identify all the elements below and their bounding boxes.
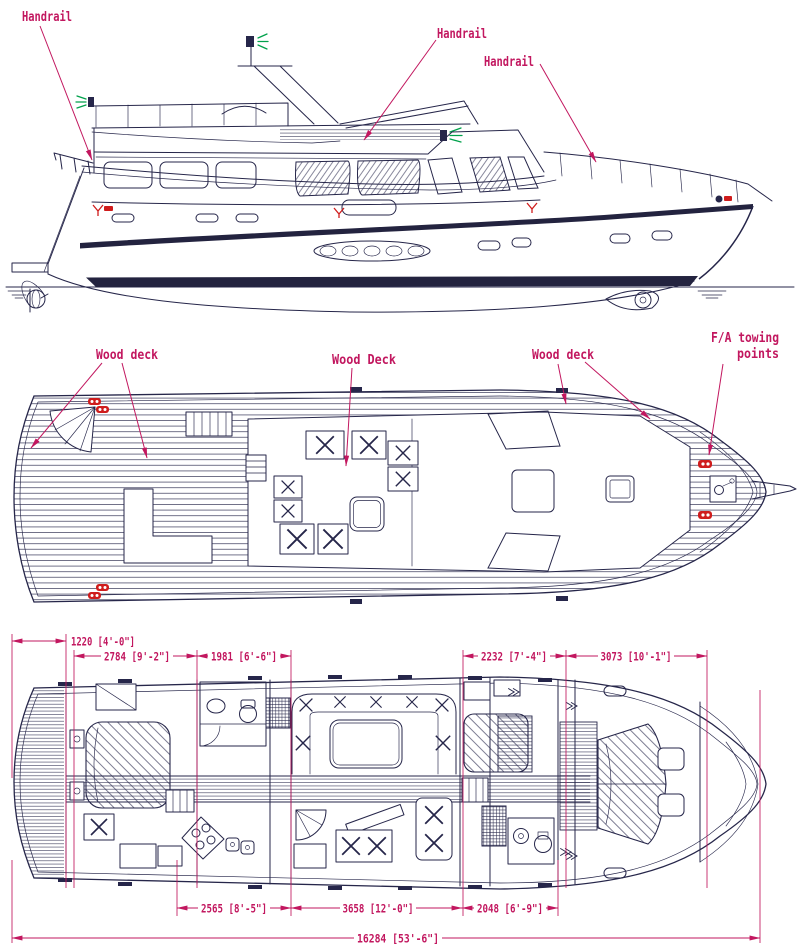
towing-points-label-line1: F/A towing <box>711 331 779 346</box>
nav-light-icon <box>246 34 268 49</box>
bow-thruster-icon <box>606 290 659 309</box>
anchor-icon <box>716 196 733 203</box>
deck-ladder <box>186 412 232 436</box>
dim-text-3658: 3658 [12'-0"] <box>343 902 414 916</box>
flybridge-table <box>350 497 384 531</box>
flybridge <box>92 101 478 143</box>
aft-handrail <box>54 153 93 174</box>
dim-text-2784: 2784 [9'-2"] <box>104 650 170 664</box>
dim-text-3073: 3073 [10'-1"] <box>601 650 672 664</box>
wood-deck-label-mid: Wood Deck <box>332 353 396 368</box>
boot-stripe <box>86 276 698 287</box>
handrail-label-foredeck: Handrail <box>484 55 534 70</box>
handrail-label-flybridge: Handrail <box>437 27 487 42</box>
propeller-icon <box>22 281 48 308</box>
dim-text-1220: 1220 [4'-0"] <box>71 635 135 649</box>
deck-plan-view: Wood deck Wood Deck Wood deck F/A towing… <box>14 331 796 604</box>
dim-text-1981: 1981 [6'-6"] <box>211 650 277 664</box>
yacht-ga-drawing: Handrail Handrail Handrail <box>0 0 800 950</box>
dim-text-2048: 2048 [6'-9"] <box>477 902 543 916</box>
wood-deck-label-aft: Wood deck <box>96 348 158 363</box>
floor-plan-view <box>14 675 766 890</box>
drawing-canvas: Handrail Handrail Handrail <box>0 0 800 950</box>
dim-text-16284: 16284 [53'-6"] <box>357 932 439 946</box>
dim-text-2232: 2232 [7'-4"] <box>481 650 547 664</box>
side-profile-view: Handrail Handrail Handrail <box>6 10 794 312</box>
locker-grid-fwd <box>482 806 506 846</box>
sheer-stripe <box>80 204 753 249</box>
handrail-label-aft: Handrail <box>22 10 72 25</box>
leader-handrail-aft <box>40 26 92 160</box>
windlass-icon <box>710 476 736 502</box>
flybridge-stairwell <box>246 455 266 481</box>
locker-grid-aft <box>266 698 290 728</box>
leader-handrail-foredeck <box>540 64 596 162</box>
towing-points-label-line2: points <box>737 347 779 362</box>
stern-light-icon <box>76 96 94 108</box>
dim-text-2565: 2565 [8'-5"] <box>201 902 267 916</box>
wood-deck-label-fore: Wood deck <box>532 348 594 363</box>
transom-steps <box>14 676 64 888</box>
